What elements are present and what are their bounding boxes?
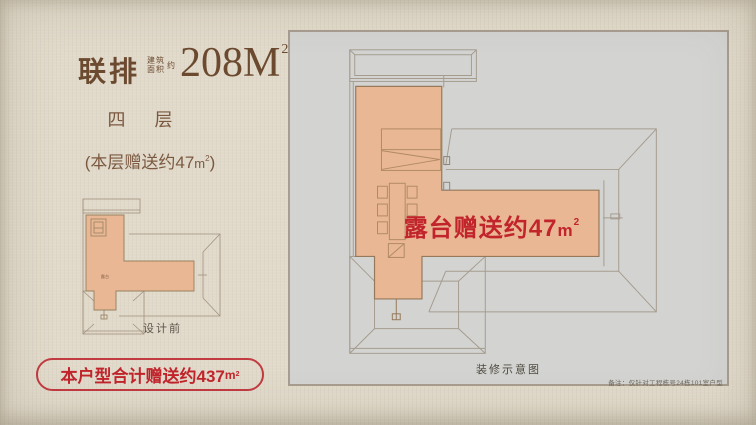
small-plan-caption: 设计前 (143, 320, 182, 336)
terrace-gift-text: 露台赠送约47 (404, 215, 558, 242)
small-terrace-area (86, 215, 194, 310)
decorated-plan-panel: 露台赠送约47m2 装修示意图 备注：仅针对工程栋号24栋101室户型 (288, 30, 729, 386)
area-prefix-side: 约 (167, 60, 175, 71)
floorplan-poster: { "title": { "type": "联排", "prefix_row1"… (0, 0, 756, 425)
area-prefix-block: 建筑 面积 约 (147, 56, 175, 74)
total-gift-badge: 本户型合计赠送约437m2 (36, 358, 264, 391)
area-prefix-row1: 建筑 (147, 56, 165, 65)
area-value: 208M (180, 42, 280, 84)
panel-caption: 装修示意图 (290, 361, 727, 377)
floor-gift-note-text: (本层赠送约47 (85, 153, 195, 172)
unit-m: m (558, 221, 574, 240)
terrace-gift-label: 露台赠送约47m2 (386, 208, 598, 243)
floor-label: 四 层 (40, 106, 240, 132)
floor-gift-note-close: ) (210, 153, 216, 172)
floor-gift-note: (本层赠送约47m2) (10, 148, 290, 173)
unit-m: m (225, 368, 236, 382)
house-type-label: 联排 (78, 50, 140, 90)
small-gate-symbol (101, 310, 107, 319)
small-floor-plan-svg: 露台 (57, 191, 232, 341)
unit-sup: 2 (236, 371, 240, 378)
unit-m: m (194, 156, 205, 171)
total-gift-text: 本户型合计赠送约437 (61, 362, 225, 387)
terrace-area (356, 86, 599, 299)
area-prefix-row2: 面积 (147, 65, 165, 74)
unit-sup: 2 (574, 217, 581, 228)
gate-symbol (392, 299, 400, 320)
panel-disclaimer-note: 备注：仅针对工程栋号24栋101室户型 (608, 377, 723, 387)
header-title: 联排 建筑 面积 约 208M2 (78, 42, 288, 90)
small-plan-room-label: 露台 (101, 273, 109, 280)
